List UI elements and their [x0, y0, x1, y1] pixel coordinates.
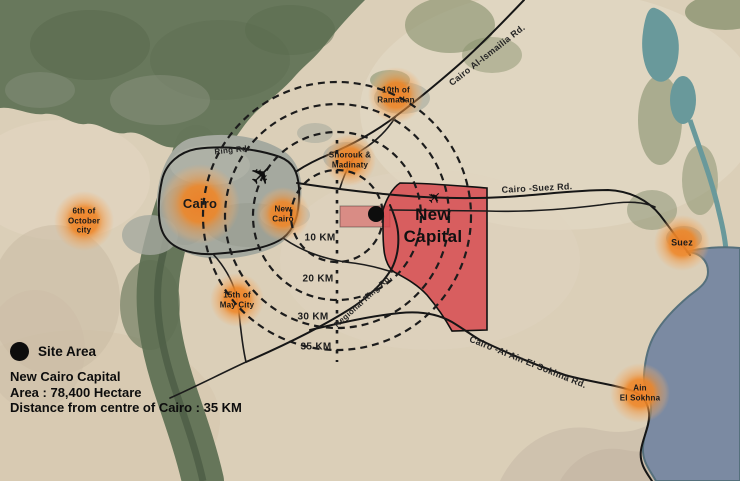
legend-area: Area : 78,400 Hectare	[10, 385, 242, 401]
city-label-cairo: Cairo	[183, 196, 217, 212]
city-label-6th-of-october: 6th of October city	[68, 207, 100, 236]
legend-distance: Distance from centre of Cairo : 35 KM	[10, 400, 242, 416]
city-label-new-cairo: New Cairo	[272, 204, 293, 223]
road-label-cairo-al-ain-el-sokhna-rd: Cairo -Al Ain El Sokhna Rd.	[468, 334, 588, 390]
new-capital-label: New Capital	[404, 204, 463, 248]
city-label-shorouk-madinaty: Shorouk & Madinaty	[329, 150, 371, 169]
road-label-ring-rd: Ring Rd.	[214, 144, 250, 157]
legend: Site Area New Cairo Capital Area : 78,40…	[10, 342, 242, 416]
ring-label-10-km: 10 KM	[305, 233, 336, 244]
ring-label-20-km: 20 KM	[303, 274, 334, 285]
site-area-legend-dot	[10, 342, 29, 361]
city-label-10th-of-ramadan: 10th of Ramadan	[377, 85, 414, 104]
ring-label-30-km: 30 KM	[298, 312, 329, 323]
ring-label-35-km: 35 KM	[301, 342, 332, 353]
legend-title: New Cairo Capital	[10, 369, 242, 385]
city-label-ain-el-sokhna: Ain El Sokhna	[620, 383, 660, 402]
road-label-cairo-suez-rd: Cairo -Suez Rd.	[501, 181, 572, 195]
road-label-cairo-al-ismailia-rd: Cairo Al-Ismailia Rd.	[447, 22, 527, 87]
city-label-15th-of-may: 15th of May City	[220, 290, 255, 309]
map-canvas: New Capital ✈ ✈ CairoNew CairoShorouk & …	[0, 0, 740, 481]
road-label-regional-ring-rd: Regional Ring Rd.	[332, 273, 393, 329]
city-label-suez: Suez	[671, 238, 693, 249]
airport-icon-cairo: ✈	[244, 158, 279, 193]
site-area-legend-label: Site Area	[38, 344, 96, 359]
